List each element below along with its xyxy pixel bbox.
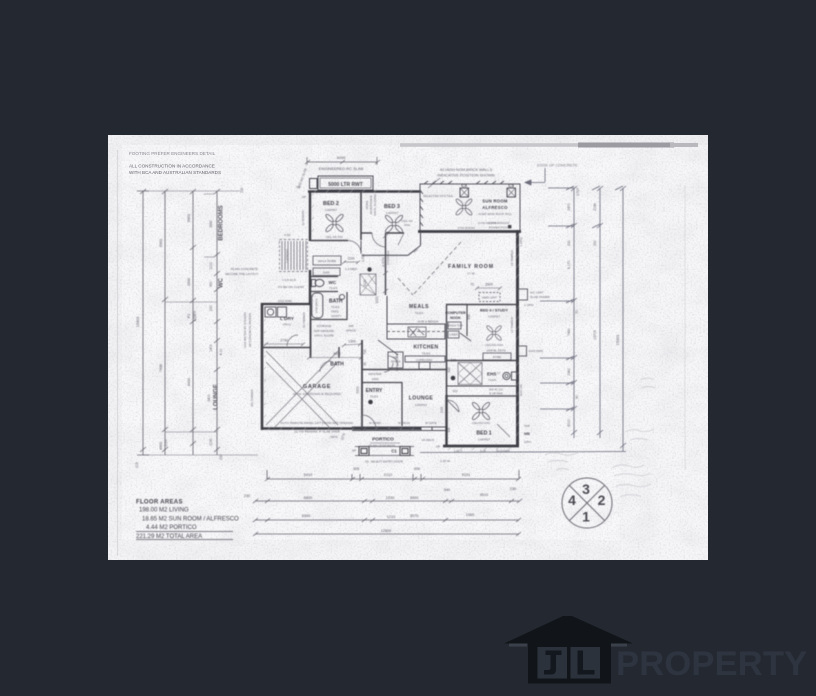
svg-text:540: 540 [444, 488, 450, 492]
svg-text:ACER MAIN ROOF INCL: ACER MAIN ROOF INCL [478, 212, 512, 216]
svg-text:1600: 1600 [187, 278, 191, 286]
svg-text:DP: DP [302, 195, 306, 199]
svg-text:TO BE ON CLEAR: TO BE ON CLEAR [278, 285, 305, 289]
svg-text:90: 90 [363, 362, 367, 366]
svg-text:219: 219 [135, 462, 139, 468]
svg-text:GARAGE: GARAGE [303, 384, 331, 390]
svg-text:CARPET: CARPET [478, 438, 491, 442]
svg-text:RD TANKER: RD TANKER [250, 389, 254, 407]
svg-text:5410: 5410 [304, 473, 312, 477]
svg-text:COMPUTER: COMPUTER [445, 311, 466, 315]
svg-text:GAS HWS: GAS HWS [529, 349, 544, 353]
svg-text:CARPET: CARPET [415, 403, 428, 407]
svg-text:5151: 5151 [462, 473, 470, 477]
svg-text:CARPET: CARPET [488, 315, 500, 319]
svg-text:WITH BCA AND AUSTRALIAN STANDA: WITH BCA AND AUSTRALIAN STANDARDS [129, 170, 221, 175]
svg-text:WC: WC [329, 280, 337, 285]
svg-text:BED 1: BED 1 [476, 431, 491, 437]
svg-text:70: 70 [470, 283, 474, 287]
svg-text:16 TIMBER: 16 TIMBER [510, 249, 514, 266]
svg-text:8403: 8403 [187, 378, 191, 386]
svg-text:7490: 7490 [159, 364, 163, 372]
svg-text:CUPBOARD: CUPBOARD [416, 358, 432, 362]
svg-text:9000: 9000 [333, 352, 341, 356]
svg-text:ALL CONSTRUCTION IN ACCORDANCE: ALL CONSTRUCTION IN ACCORDANCE [129, 164, 215, 169]
svg-text:1.20 Y: 1.20 Y [454, 449, 463, 453]
svg-text:2690: 2690 [209, 220, 213, 228]
svg-text:SPACE: SPACE [391, 360, 401, 364]
svg-text:TILES: TILES [329, 286, 337, 290]
svg-text:1060: 1060 [466, 513, 474, 517]
svg-text:4: 4 [568, 492, 576, 508]
svg-text:BENCH TOP: BENCH TOP [446, 324, 462, 328]
svg-text:3900: 3900 [410, 496, 418, 500]
svg-text:EHS: EHS [487, 372, 496, 377]
svg-text:230: 230 [244, 494, 250, 498]
svg-text:INDICATIVE POSITION SHOWN: INDICATIVE POSITION SHOWN [437, 173, 494, 178]
svg-text:LOUNGE: LOUNGE [409, 396, 434, 402]
svg-text:12600: 12600 [381, 529, 392, 533]
svg-text:TILES: TILES [415, 311, 424, 315]
svg-text:4000: 4000 [337, 155, 347, 160]
svg-text:NOOK: NOOK [450, 316, 461, 320]
svg-text:1400: 1400 [372, 377, 379, 381]
svg-text:VINYL SLOPE: VINYL SLOPE [314, 334, 333, 338]
svg-text:40 HIGH NOM BRICK WALLS: 40 HIGH NOM BRICK WALLS [440, 167, 493, 172]
svg-text:230: 230 [209, 305, 213, 311]
svg-text:3.05: 3.05 [480, 449, 486, 453]
svg-text:W DECK: W DECK [398, 421, 410, 425]
svg-text:W10 OG: W10 OG [519, 383, 523, 396]
svg-text:A/C UNIT: A/C UNIT [530, 291, 543, 295]
svg-text:SPACE: SPACE [346, 329, 356, 333]
svg-text:TAP: TAP [524, 424, 530, 428]
svg-text:PROPERTY: PROPERTY [616, 645, 807, 683]
svg-text:TILES: TILES [331, 305, 339, 309]
svg-text:MASTER: MASTER [369, 372, 383, 376]
svg-text:2190: 2190 [209, 438, 213, 446]
svg-text:W8: W8 [447, 427, 451, 432]
svg-text:70: 70 [575, 310, 579, 314]
svg-text:WALK ROBE: WALK ROBE [318, 259, 336, 263]
svg-text:12 TIMBER: 12 TIMBER [510, 316, 514, 333]
svg-text:198.00 M2 LIVING: 198.00 M2 LIVING [139, 508, 189, 514]
svg-text:GAS METER BY OTHERS: GAS METER BY OTHERS [243, 312, 247, 348]
svg-text:L'DRY: L'DRY [193, 310, 197, 321]
svg-text:PORTICO: PORTICO [372, 437, 394, 443]
svg-text:SUN ROOM: SUN ROOM [482, 199, 508, 204]
svg-text:ROBE: ROBE [493, 355, 502, 359]
svg-text:MEALS: MEALS [409, 304, 429, 310]
svg-text:5970: 5970 [331, 435, 338, 439]
svg-text:6300: 6300 [302, 514, 310, 518]
svg-text:83 TIMBER: 83 TIMBER [302, 311, 306, 327]
svg-text:4 SD: 4 SD [284, 233, 292, 237]
svg-text:PLAIN CONCRETE: PLAIN CONCRETE [369, 444, 395, 448]
svg-text:12 RISERS: 12 RISERS [301, 210, 305, 225]
svg-text:MB: MB [524, 432, 530, 436]
svg-text:BED 3: BED 3 [384, 204, 400, 210]
svg-text:17.40: 17.40 [467, 272, 475, 276]
svg-text:3: 3 [582, 481, 590, 497]
svg-text:VINYL: VINYL [283, 323, 292, 327]
svg-text:6903: 6903 [187, 214, 191, 222]
svg-text:1408 BL.DSTN: 1408 BL.DSTN [486, 349, 505, 353]
svg-text:3570: 3570 [410, 514, 418, 518]
svg-text:15903: 15903 [616, 335, 620, 346]
svg-text:STEP: STEP [576, 188, 580, 196]
svg-text:230: 230 [593, 240, 597, 246]
svg-text:CARPET: CARPET [386, 211, 399, 215]
svg-text:1.200: 1.200 [361, 254, 365, 262]
svg-text:P2: P2 [187, 314, 191, 318]
svg-text:FOOTING PREFER ENGINEERS DETAI: FOOTING PREFER ENGINEERS DETAIL [129, 151, 216, 156]
svg-text:2110: 2110 [384, 473, 392, 477]
svg-text:1760 BATH: 1760 BATH [315, 299, 319, 314]
svg-text:19 DECK: 19 DECK [422, 438, 436, 442]
svg-text:A.NTN: A.NTN [382, 257, 386, 267]
svg-text:STORAGE: STORAGE [386, 250, 390, 265]
svg-text:5800: 5800 [304, 496, 312, 500]
svg-text:4603: 4603 [159, 442, 163, 450]
svg-text:900: 900 [467, 314, 471, 320]
svg-text:7490: 7490 [567, 328, 571, 336]
svg-text:CEILING FAN: CEILING FAN [485, 343, 503, 347]
svg-text:WR: WR [349, 324, 355, 328]
svg-text:W/ CONCRETE PAVERS: W/ CONCRETE PAVERS [248, 313, 252, 347]
svg-text:VANITY: VANITY [331, 314, 342, 318]
svg-text:17: 17 [497, 371, 501, 375]
svg-text:C1: C1 [391, 449, 397, 454]
svg-text:1: 1 [582, 509, 590, 525]
svg-text:1.2 MED: 1.2 MED [345, 267, 358, 271]
svg-text:GP: GP [436, 445, 440, 449]
svg-text:4.10: 4.10 [219, 349, 223, 356]
svg-text:CARPET: CARPET [325, 208, 338, 212]
svg-text:7 RISERS: 7 RISERS [285, 249, 289, 263]
svg-text:TAPS: TAPS [331, 310, 339, 314]
svg-text:W DOWN: W DOWN [496, 449, 509, 453]
svg-text:1960: 1960 [567, 368, 571, 376]
svg-text:= C3 SCS: = C3 SCS [282, 278, 296, 282]
svg-text:2196: 2196 [593, 203, 597, 211]
svg-text:No. SELECT ENTRY DOOR: No. SELECT ENTRY DOOR [365, 460, 404, 464]
svg-text:GP: GP [352, 449, 356, 453]
svg-text:2111 6040: 2111 6040 [278, 299, 292, 303]
svg-text:3.05: 3.05 [440, 407, 444, 413]
svg-text:KITCHEN: KITCHEN [413, 345, 438, 351]
svg-text:230: 230 [240, 187, 244, 193]
svg-text:FAMILY ROOM: FAMILY ROOM [448, 264, 494, 270]
svg-text:6 VP PAR: 6 VP PAR [489, 392, 503, 396]
svg-text:790: 790 [363, 349, 367, 355]
svg-text:1110: 1110 [347, 257, 354, 261]
svg-text:FLOOR AREAS: FLOOR AREAS [136, 500, 183, 506]
svg-text:13705: 13705 [593, 330, 597, 340]
svg-text:1530: 1530 [386, 496, 394, 500]
svg-text:HOB & BENCH: HOB & BENCH [418, 320, 439, 324]
svg-text:5000 LTR RWT: 5000 LTR RWT [328, 182, 363, 188]
svg-text:15903: 15903 [136, 317, 140, 328]
svg-text:WC: WC [219, 277, 225, 288]
svg-text:CEILING FAN: CEILING FAN [472, 421, 490, 425]
svg-text:W GATE: W GATE [425, 421, 437, 425]
svg-text:GPH: GPH [524, 440, 531, 444]
svg-text:6903: 6903 [159, 239, 163, 247]
svg-text:TILES: TILES [488, 378, 496, 382]
svg-text:4.44 M2 PORTICO: 4.44 M2 PORTICO [146, 525, 197, 531]
svg-text:OP: OP [296, 185, 300, 189]
svg-text:W VW STEPDOWN IF REQUIRED: W VW STEPDOWN IF REQUIRED [293, 392, 342, 396]
svg-text:2: 2 [598, 492, 606, 508]
svg-text:BED 2: BED 2 [323, 201, 339, 207]
svg-text:FAN: FAN [404, 223, 410, 227]
svg-text:5370: 5370 [356, 386, 360, 393]
svg-text:C3: C3 [508, 183, 514, 188]
svg-text:ENGINEERED RC SLAB: ENGINEERED RC SLAB [319, 166, 364, 171]
svg-text:NAT GROUND: NAT GROUND [314, 329, 335, 333]
svg-text:230: 230 [567, 240, 571, 246]
svg-text:STORAGE: STORAGE [317, 324, 332, 328]
svg-text:1020: 1020 [375, 296, 379, 303]
svg-text:9000: 9000 [567, 419, 571, 427]
svg-text:TILES: TILES [422, 352, 431, 356]
svg-text:2730: 2730 [280, 339, 288, 343]
svg-text:90: 90 [575, 395, 579, 399]
svg-text:ALFRESCO: ALFRESCO [482, 205, 508, 210]
svg-text:1000: 1000 [164, 439, 168, 447]
svg-text:920: 920 [452, 389, 457, 393]
svg-text:18.65 M2 SUN ROOM / ALFRESCO: 18.65 M2 SUN ROOM / ALFRESCO [142, 517, 239, 523]
svg-text:AUTO REMOTE PANEL LIFT DOOR W: AUTO REMOTE PANEL LIFT DOOR W/O OPENING [281, 421, 354, 425]
svg-text:TILES: TILES [370, 395, 378, 399]
svg-text:C3: C3 [461, 183, 467, 188]
svg-text:LOUNGE: LOUNGE [214, 384, 220, 410]
svg-text:BATH: BATH [330, 362, 344, 368]
svg-text:1.20 W: 1.20 W [440, 459, 450, 463]
svg-text:(2) VW REMARK IF SLAB OVER: (2) VW REMARK IF SLAB OVER [294, 430, 340, 434]
svg-text:950: 950 [209, 281, 213, 287]
svg-text:1210: 1210 [387, 515, 395, 519]
svg-text:3400: 3400 [207, 394, 211, 402]
svg-text:1 OPO: 1 OPO [524, 303, 534, 307]
svg-text:SLAB UNDER: SLAB UNDER [530, 295, 551, 299]
svg-text:221.29 M2 TOTAL AREA: 221.29 M2 TOTAL AREA [136, 534, 202, 540]
svg-text:3510: 3510 [480, 493, 488, 497]
svg-text:VINYL SLIDING: VINYL SLIDING [373, 193, 377, 216]
svg-text:1400: 1400 [209, 344, 213, 352]
svg-text:920: 920 [447, 367, 451, 373]
svg-text:SELECTED NTS TILE: SELECTED NTS TILE [423, 194, 453, 198]
svg-text:BEDROOMS: BEDROOMS [219, 205, 225, 240]
svg-text:230: 230 [510, 487, 516, 491]
svg-text:270A ROOM: 270A ROOM [457, 226, 475, 230]
svg-text:900: 900 [414, 467, 420, 471]
svg-text:LINEN: LINEN [449, 333, 457, 337]
svg-text:POWER PONT: POWER PONT [489, 226, 510, 230]
svg-text:305: 305 [353, 467, 359, 471]
svg-text:2470: 2470 [567, 203, 571, 211]
svg-text:BED 4 / STUDY: BED 4 / STUDY [480, 308, 508, 313]
svg-text:4.170: 4.170 [567, 261, 571, 270]
svg-text:WATERPROOF: WATERPROOF [488, 221, 509, 225]
svg-text:1100: 1100 [209, 262, 213, 269]
svg-text:EDGE OF CONCRETE: EDGE OF CONCRETE [537, 163, 578, 168]
svg-text:PLAIN CONCRETE: PLAIN CONCRETE [231, 267, 258, 271]
svg-text:ENTRY: ENTRY [366, 388, 383, 394]
svg-text:CEIL AD FIN: CEIL AD FIN [325, 235, 342, 239]
svg-text:1105: 1105 [323, 271, 330, 275]
svg-text:HWD UNIT: HWD UNIT [482, 296, 497, 300]
svg-text:2600: 2600 [485, 283, 493, 287]
svg-text:1300: 1300 [348, 340, 356, 344]
svg-text:1 OPO: 1 OPO [519, 237, 523, 247]
svg-text:SECURE THE LAYOUT: SECURE THE LAYOUT [225, 272, 258, 276]
